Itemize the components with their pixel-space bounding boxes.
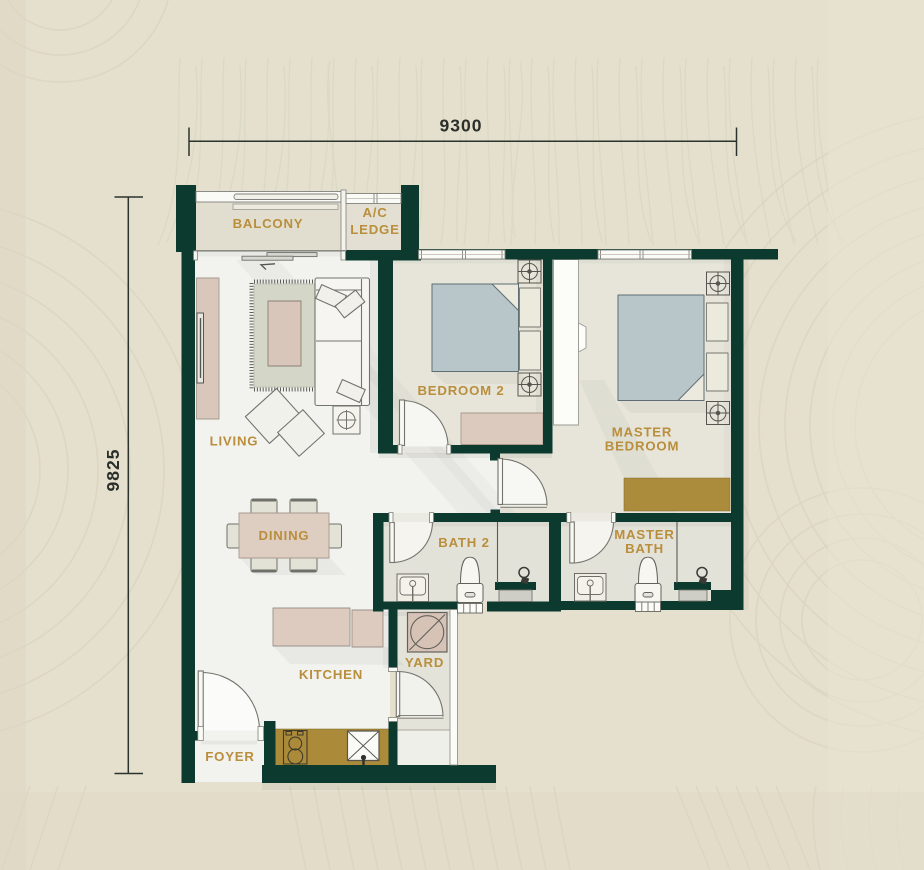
svg-text:BALCONY: BALCONY <box>233 216 304 231</box>
svg-text:DINING: DINING <box>259 528 310 543</box>
svg-text:MASTER: MASTER <box>614 527 674 542</box>
svg-text:LEDGE: LEDGE <box>350 222 399 237</box>
svg-text:YARD: YARD <box>405 655 444 670</box>
svg-text:FOYER: FOYER <box>205 749 254 764</box>
svg-text:BATH: BATH <box>625 541 664 556</box>
svg-text:BATH 2: BATH 2 <box>438 535 489 550</box>
svg-text:9300: 9300 <box>440 116 483 136</box>
svg-text:BEDROOM 2: BEDROOM 2 <box>417 383 504 398</box>
svg-text:KITCHEN: KITCHEN <box>299 667 363 682</box>
svg-text:LIVING: LIVING <box>210 434 259 449</box>
svg-text:9825: 9825 <box>103 449 123 492</box>
svg-text:MASTER: MASTER <box>612 425 672 440</box>
svg-text:BEDROOM: BEDROOM <box>605 439 679 454</box>
svg-text:A/C: A/C <box>362 205 387 220</box>
